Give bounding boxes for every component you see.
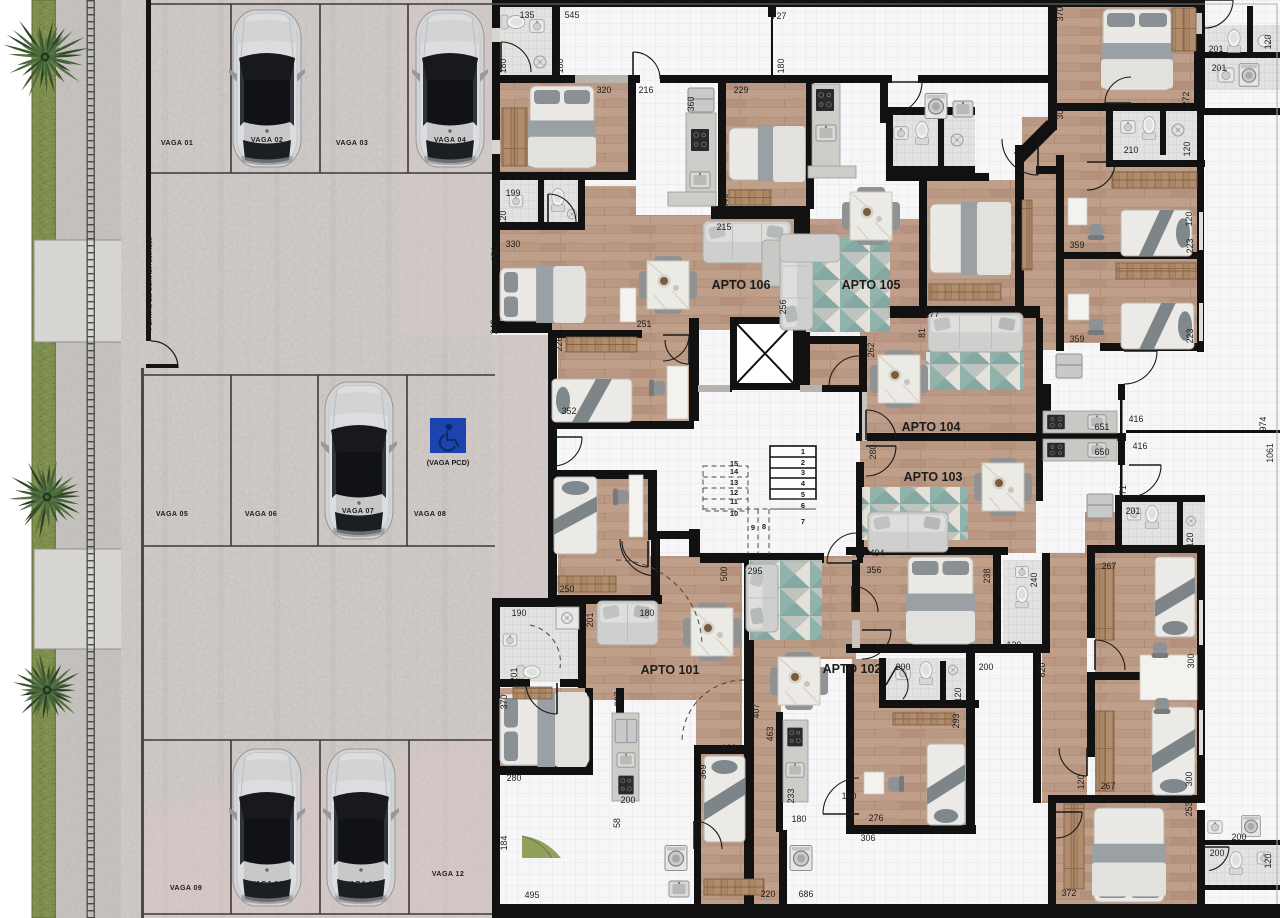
svg-text:VAGA 04: VAGA 04 — [434, 136, 466, 144]
svg-text:APTO 104: APTO 104 — [902, 420, 961, 434]
svg-text:10: 10 — [730, 509, 738, 518]
svg-text:463: 463 — [765, 727, 775, 742]
svg-text:267: 267 — [1101, 781, 1116, 791]
svg-text:620: 620 — [1037, 663, 1047, 678]
svg-text:372: 372 — [1062, 888, 1077, 898]
svg-text:215: 215 — [717, 222, 732, 232]
svg-text:276: 276 — [869, 813, 884, 823]
svg-text:340: 340 — [720, 194, 730, 209]
svg-text:229: 229 — [734, 85, 749, 95]
svg-text:180: 180 — [776, 59, 786, 74]
svg-text:180: 180 — [555, 59, 565, 74]
svg-text:135: 135 — [520, 10, 535, 20]
svg-text:686: 686 — [799, 889, 814, 899]
svg-text:7: 7 — [801, 517, 805, 526]
svg-text:199: 199 — [506, 188, 521, 198]
svg-text:200: 200 — [979, 662, 994, 672]
svg-text:210: 210 — [1124, 145, 1139, 155]
svg-text:233: 233 — [786, 789, 796, 804]
svg-text:416: 416 — [1129, 414, 1144, 424]
svg-text:VAGA 07: VAGA 07 — [342, 507, 374, 515]
svg-text:416: 416 — [1133, 441, 1148, 451]
svg-text:243: 243 — [489, 320, 499, 335]
svg-text:277: 277 — [925, 309, 940, 319]
svg-text:280: 280 — [507, 773, 522, 783]
svg-text:58: 58 — [612, 818, 622, 828]
svg-text:226: 226 — [554, 337, 564, 352]
svg-text:359: 359 — [1070, 240, 1085, 250]
svg-text:VAGA 03: VAGA 03 — [336, 139, 368, 147]
svg-text:251: 251 — [637, 319, 652, 329]
svg-text:250: 250 — [490, 247, 500, 262]
svg-text:240: 240 — [1029, 573, 1039, 588]
svg-text:201: 201 — [1209, 44, 1224, 54]
svg-text:327: 327 — [613, 692, 623, 707]
svg-text:223: 223 — [1185, 239, 1195, 254]
svg-text:256: 256 — [778, 300, 788, 315]
svg-text:306: 306 — [861, 833, 876, 843]
svg-text:APTO 106: APTO 106 — [712, 278, 771, 292]
svg-text:120: 120 — [1007, 640, 1022, 650]
svg-text:VAGA 01: VAGA 01 — [161, 139, 193, 147]
svg-text:359: 359 — [1070, 334, 1085, 344]
svg-text:253: 253 — [1184, 802, 1194, 817]
svg-text:370: 370 — [1055, 7, 1065, 22]
svg-text:201: 201 — [509, 668, 519, 683]
svg-text:190: 190 — [512, 608, 527, 618]
svg-text:407: 407 — [751, 704, 761, 719]
svg-text:120: 120 — [1263, 854, 1273, 869]
svg-text:300: 300 — [1186, 654, 1196, 669]
svg-text:184: 184 — [499, 836, 509, 851]
svg-text:81: 81 — [917, 328, 927, 338]
svg-text:3: 3 — [801, 468, 805, 477]
svg-text:APTO 101: APTO 101 — [641, 663, 700, 677]
svg-text:495: 495 — [525, 890, 540, 900]
svg-text:201: 201 — [585, 613, 595, 628]
svg-text:360: 360 — [686, 97, 696, 112]
svg-text:180: 180 — [640, 608, 655, 618]
svg-text:120: 120 — [953, 688, 963, 703]
svg-text:201: 201 — [1212, 63, 1227, 73]
svg-text:369: 369 — [698, 765, 708, 780]
svg-text:651: 651 — [1095, 422, 1110, 432]
svg-text:238: 238 — [982, 569, 992, 584]
svg-text:11: 11 — [730, 497, 738, 506]
svg-text:120: 120 — [1185, 533, 1195, 548]
svg-text:6: 6 — [801, 501, 805, 510]
svg-text:293: 293 — [951, 714, 961, 729]
svg-text:VAGA 12: VAGA 12 — [432, 870, 464, 878]
svg-text:500: 500 — [719, 567, 729, 582]
svg-text:223: 223 — [1185, 329, 1195, 344]
svg-text:1: 1 — [801, 447, 805, 456]
svg-text:9: 9 — [751, 523, 755, 532]
svg-text:650: 650 — [1095, 447, 1110, 457]
svg-text:14: 14 — [730, 467, 739, 476]
svg-text:APTO 103: APTO 103 — [904, 470, 963, 484]
svg-text:250: 250 — [560, 584, 575, 594]
svg-text:120: 120 — [1184, 212, 1194, 227]
svg-text:220: 220 — [761, 889, 776, 899]
svg-text:494: 494 — [870, 548, 885, 558]
svg-text:180: 180 — [792, 814, 807, 824]
svg-text:356: 356 — [867, 565, 882, 575]
svg-text:200: 200 — [1232, 832, 1247, 842]
svg-text:352: 352 — [562, 406, 577, 416]
svg-text:5: 5 — [801, 490, 805, 499]
svg-text:VAGA 10: VAGA 10 — [251, 880, 283, 888]
svg-text:12: 12 — [730, 488, 738, 497]
svg-text:(VAGA PCD): (VAGA PCD) — [427, 458, 470, 467]
svg-text:300: 300 — [1184, 772, 1194, 787]
svg-text:APTO 105: APTO 105 — [842, 278, 901, 292]
svg-text:302: 302 — [1055, 105, 1065, 120]
svg-text:13: 13 — [730, 478, 738, 487]
svg-text:320: 320 — [597, 85, 612, 95]
svg-text:545: 545 — [565, 10, 580, 20]
svg-text:120: 120 — [1182, 142, 1192, 157]
svg-text:180: 180 — [842, 791, 857, 801]
svg-text:VAGA 09: VAGA 09 — [170, 884, 202, 892]
svg-text:330: 330 — [506, 239, 521, 249]
svg-text:295: 295 — [748, 566, 763, 576]
svg-text:VAGA 11: VAGA 11 — [345, 880, 377, 888]
svg-text:974: 974 — [1258, 417, 1268, 432]
svg-text:120: 120 — [1076, 775, 1086, 790]
svg-text:VAGA 06: VAGA 06 — [245, 510, 277, 518]
svg-text:272: 272 — [1181, 92, 1191, 107]
svg-text:120: 120 — [498, 211, 508, 226]
svg-text:280: 280 — [868, 445, 878, 460]
svg-text:2: 2 — [801, 458, 805, 467]
svg-text:71: 71 — [1118, 485, 1128, 495]
svg-text:262: 262 — [866, 343, 876, 358]
svg-text:200: 200 — [621, 795, 636, 805]
svg-text:8: 8 — [762, 522, 766, 531]
svg-text:727: 727 — [772, 11, 787, 21]
svg-text:APTO 102: APTO 102 — [823, 662, 882, 676]
svg-text:VAGA 05: VAGA 05 — [156, 510, 188, 518]
svg-text:1061: 1061 — [1265, 443, 1275, 463]
svg-text:VAGA 02: VAGA 02 — [251, 136, 283, 144]
svg-text:PORTÃO DE CORRER 250X210: PORTÃO DE CORRER 250X210 — [145, 237, 154, 330]
svg-text:200: 200 — [1210, 848, 1225, 858]
svg-text:180: 180 — [498, 59, 508, 74]
svg-text:120: 120 — [1263, 35, 1273, 50]
svg-text:267: 267 — [1102, 561, 1117, 571]
svg-text:VAGA 08: VAGA 08 — [414, 510, 446, 518]
svg-text:120: 120 — [722, 743, 737, 753]
svg-text:216: 216 — [639, 85, 654, 95]
svg-text:200: 200 — [896, 662, 911, 672]
svg-text:201: 201 — [1126, 506, 1141, 516]
svg-text:370: 370 — [499, 695, 509, 710]
